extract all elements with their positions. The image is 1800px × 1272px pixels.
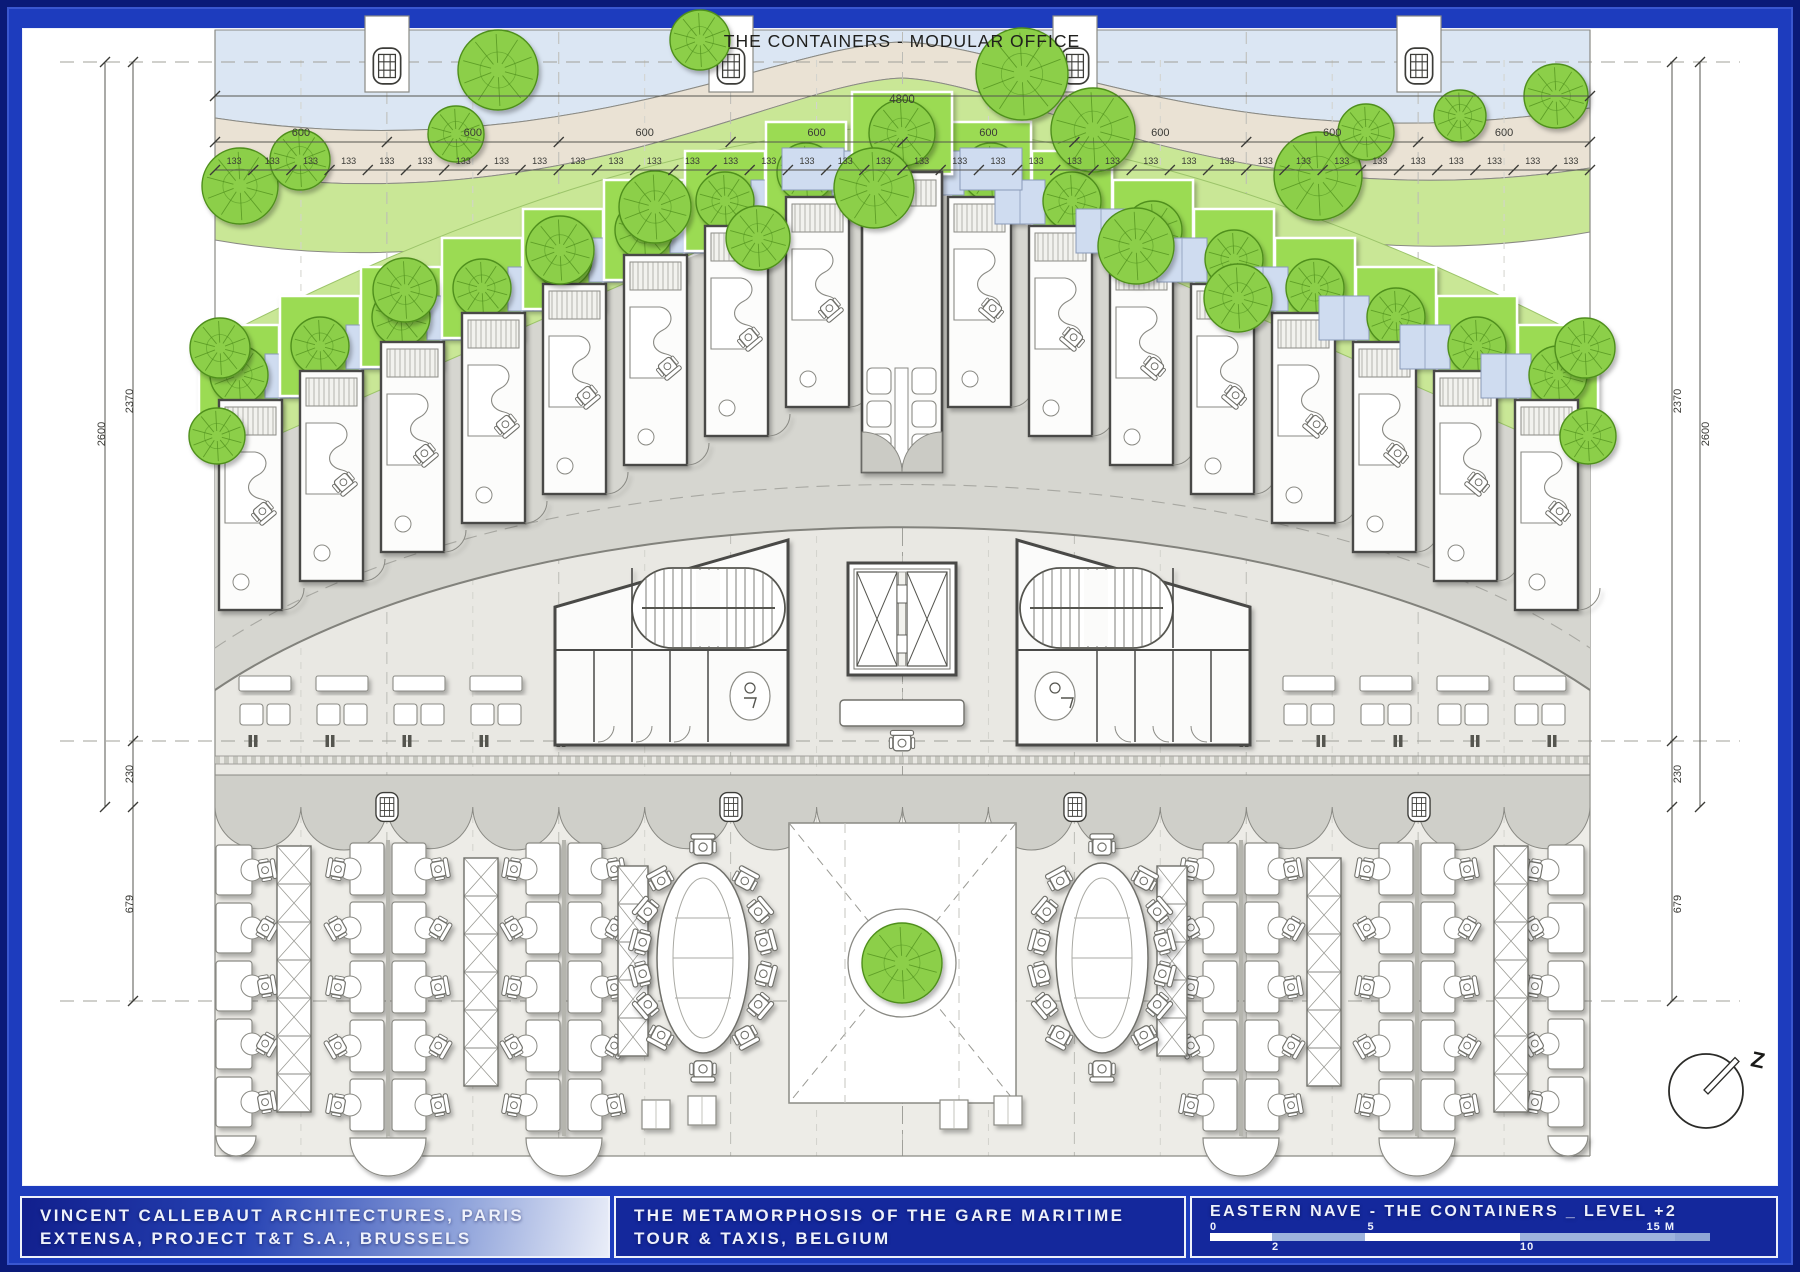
dim-bay-label: 600 [464,127,482,139]
floor-plan-drawing: 6006006006006006006006001331331331331331… [0,0,1800,1272]
wall-tick [403,735,407,747]
side-table [962,371,978,387]
tree-icon [670,10,730,70]
cores-layer [555,540,1250,751]
office-chair-icon [1089,1061,1115,1082]
tree-icon [1098,208,1174,284]
wall-lamp-icon [720,793,742,822]
scale-label-10: 10 [1520,1241,1534,1253]
dim-module-label: 133 [1220,156,1235,166]
tree-icon [291,317,349,375]
tree-icon [619,171,691,243]
bench-chair [1311,704,1334,725]
side-table [233,574,249,590]
side-table [1124,429,1140,445]
scale-seg-4 [1520,1233,1675,1241]
dim-bay-label: 600 [636,127,654,139]
scale-seg-3 [1365,1233,1520,1241]
sheet-title: EASTERN NAVE - THE CONTAINERS _ LEVEL +2 [1210,1203,1758,1221]
scale-seg-2 [1272,1233,1365,1241]
office-chair-icon [690,1061,716,1082]
scale-bar: 0 5 15 M 2 10 [1210,1224,1710,1250]
row-spine [562,840,566,1136]
dim-bay-label: 600 [1495,127,1513,139]
tree-crown [1338,104,1394,160]
bench-table [239,676,291,691]
wall-tick [326,735,330,747]
dim-module-label: 133 [1449,156,1464,166]
elevator-counterweight [897,585,907,603]
side-table [719,400,735,416]
street-lamp-icon [1405,48,1432,84]
tree-crown [373,258,437,322]
side-table [1043,400,1059,416]
side-table [1205,458,1221,474]
dim-left-outer: 2600 [96,422,108,446]
scale-seg-5 [1675,1233,1710,1241]
titleblock-sheet: EASTERN NAVE - THE CONTAINERS _ LEVEL +2… [1190,1196,1778,1258]
bench-table [1283,676,1335,691]
wall-tick [1476,735,1480,747]
tree-crown [862,923,942,1003]
tree-icon [862,923,942,1003]
meeting-chair [867,368,891,394]
architect-line2: EXTENSA, PROJECT T&T S.A., BRUSSELS [40,1229,590,1249]
side-table [1529,574,1545,590]
architect-line1: VINCENT CALLEBAUT ARCHITECTURES, PARIS [40,1206,590,1226]
dim-left-lower: 679 [124,895,136,913]
dim-module-label: 133 [838,156,853,166]
dim-module-label: 133 [341,156,356,166]
tree-crown [458,30,538,110]
dim-module-label: 133 [914,156,929,166]
dim-module-label: 133 [647,156,662,166]
dim-module-label: 133 [494,156,509,166]
dim-left-middle: 230 [124,765,136,783]
side-table [557,458,573,474]
dim-module-label: 133 [990,156,1005,166]
dim-module-label: 133 [456,156,471,166]
tree-icon [526,216,594,284]
plan-canvas: 6006006006006006006006001331331331331331… [22,28,1778,1186]
titleblock-architect: VINCENT CALLEBAUT ARCHITECTURES, PARIS E… [20,1196,610,1258]
storage-shelf [1494,846,1528,1112]
tree-icon [189,408,245,464]
storage-shelf [277,846,311,1112]
bench-table [1437,676,1489,691]
dim-bay-label: 600 [979,127,997,139]
row-spine [386,840,390,1136]
bench-chair [267,704,290,725]
side-table [1367,516,1383,532]
north-label: Z [1749,1046,1767,1073]
side-table [1448,545,1464,561]
titleblock-project: THE METAMORPHOSIS OF THE GARE MARITIME T… [614,1196,1186,1258]
wall-tick [1394,735,1398,747]
dim-module-label: 133 [876,156,891,166]
dim-module-label: 133 [761,156,776,166]
bench-table [316,676,368,691]
bench-chair [498,704,521,725]
row-end-cap [1379,1138,1455,1176]
tree-crown [291,317,349,375]
dim-module-label: 133 [1563,156,1578,166]
tree-icon [190,318,250,378]
elevator-counterweight [897,635,907,653]
dim-right-lower: 679 [1672,895,1684,913]
tree-icon [1560,408,1616,464]
bench-chair [1388,704,1411,725]
dim-module-label: 133 [1525,156,1540,166]
meeting-chair [912,401,936,427]
generated-plan-graphics: 6006006006006006006006001331331331331331… [60,10,1740,1176]
dim-module-label: 133 [265,156,280,166]
dim-module-label: 133 [570,156,585,166]
tree-icon [1051,88,1135,172]
dim-left-upper: 2370 [124,389,136,413]
tree-crown [526,216,594,284]
tree-icon [373,258,437,322]
dim-module-label: 133 [952,156,967,166]
side-table [638,429,654,445]
bench-table [470,676,522,691]
dim-module-label: 133 [1181,156,1196,166]
street-lamp-icon [373,48,400,84]
dim-module-label: 133 [1029,156,1044,166]
tree-crown [1098,208,1174,284]
tree-crown [189,408,245,464]
wall-tick [1317,735,1321,747]
bench-chair [394,704,417,725]
tree-icon [1555,318,1615,378]
tree-icon [458,30,538,110]
wall-tick [1322,735,1326,747]
dim-right-middle: 230 [1672,765,1684,783]
dim-module-label: 133 [227,156,242,166]
wall-tick [1548,735,1552,747]
wall-tick [408,735,412,747]
tree-icon [1338,104,1394,160]
storage-shelf [464,858,498,1086]
dim-overall-width: 4800 [889,94,915,106]
dim-module-label: 133 [418,156,433,166]
bench-chair [344,704,367,725]
project-line2: TOUR & TAXIS, BELGIUM [634,1229,1166,1249]
dim-bay-label: 600 [1151,127,1169,139]
tree-crown [1555,318,1615,378]
dim-module-label: 133 [1143,156,1158,166]
scale-bar-segments [1210,1233,1710,1241]
dim-module-label: 133 [685,156,700,166]
bench-table [1514,676,1566,691]
tree-crown [670,10,730,70]
dim-module-label: 133 [1411,156,1426,166]
tree-crown [453,259,511,317]
bench-table [393,676,445,691]
dim-module-label: 133 [1487,156,1502,166]
office-chair-icon [889,730,914,750]
row-end-cap [350,1138,426,1176]
dim-module-label: 133 [1258,156,1273,166]
dim-module-label: 133 [1296,156,1311,166]
row-spine [1239,840,1243,1136]
tree-crown [619,171,691,243]
tree-crown [190,318,250,378]
tree-crown [1560,408,1616,464]
wall-tick [249,735,253,747]
meeting-table [895,368,908,464]
atrium-void [789,823,1016,1103]
project-line1: THE METAMORPHOSIS OF THE GARE MARITIME [634,1206,1166,1226]
wall-lamp-icon [376,793,398,822]
accessible-wc [730,672,770,720]
dim-module-label: 133 [1105,156,1120,166]
north-arrow: Z [1669,1046,1767,1128]
bench-chair [1284,704,1307,725]
row-end-cap [1203,1138,1279,1176]
storage-shelf [1307,858,1341,1086]
bench-chair [1361,704,1384,725]
dim-module-label: 133 [1334,156,1349,166]
dim-right-upper: 2370 [1672,389,1684,413]
tree-crown [1204,264,1272,332]
scale-label-5: 5 [1368,1221,1375,1233]
wall-tick [331,735,335,747]
dim-right-outer: 2600 [1700,422,1712,446]
tree-crown [1434,90,1486,142]
tree-icon [1434,90,1486,142]
wall-tick [254,735,258,747]
dim-module-label: 133 [723,156,738,166]
side-table [314,545,330,561]
side-table [476,487,492,503]
accessible-wc [1035,672,1075,720]
dim-module-label: 133 [532,156,547,166]
wall-tick [485,735,489,747]
bench-chair [1465,704,1488,725]
dim-bay-label: 600 [1323,127,1341,139]
tree-icon [726,206,790,270]
dim-bay-label: 600 [807,127,825,139]
row-end-cap [526,1138,602,1176]
bench-chair [1515,704,1538,725]
dim-module-label: 133 [379,156,394,166]
bench-chair [240,704,263,725]
office-chair-icon [690,834,716,855]
tree-crown [726,206,790,270]
reception-desk [840,700,964,726]
wall-tick [1399,735,1403,747]
bench-chair [1542,704,1565,725]
bench-table [1360,676,1412,691]
meeting-chair [867,401,891,427]
elevator-shaft [848,563,956,675]
meeting-chair [912,368,936,394]
row-spine [1415,840,1419,1136]
scale-seg-1 [1210,1233,1272,1241]
side-table [800,371,816,387]
wall-lamp-icon [1064,793,1086,822]
tree-icon [453,259,511,317]
wall-tick [1553,735,1557,747]
plan-title: THE CONTAINERS - MODULAR OFFICE [724,31,1080,51]
wall-tick [1471,735,1475,747]
scale-label-15: 15 M [1647,1221,1675,1233]
wall-lamp-icon [1408,793,1430,822]
skylight-panel [960,148,1022,190]
dim-module-label: 133 [303,156,318,166]
dim-module-label: 133 [1067,156,1082,166]
drawing-sheet: 6006006006006006006006001331331331331331… [0,0,1800,1272]
scale-label-0: 0 [1210,1221,1217,1233]
tree-icon [1204,264,1272,332]
dim-bay-label: 600 [292,127,310,139]
bench-chair [1438,704,1461,725]
dim-module-label: 133 [1372,156,1387,166]
dim-module-label: 133 [609,156,624,166]
scale-label-2: 2 [1272,1241,1279,1253]
dim-module-label: 133 [799,156,814,166]
office-chair-icon [1089,834,1115,855]
tree-crown [1051,88,1135,172]
bench-chair [471,704,494,725]
side-table [1286,487,1302,503]
wall-tick [480,735,484,747]
bench-chair [421,704,444,725]
bench-chair [317,704,340,725]
side-table [395,516,411,532]
